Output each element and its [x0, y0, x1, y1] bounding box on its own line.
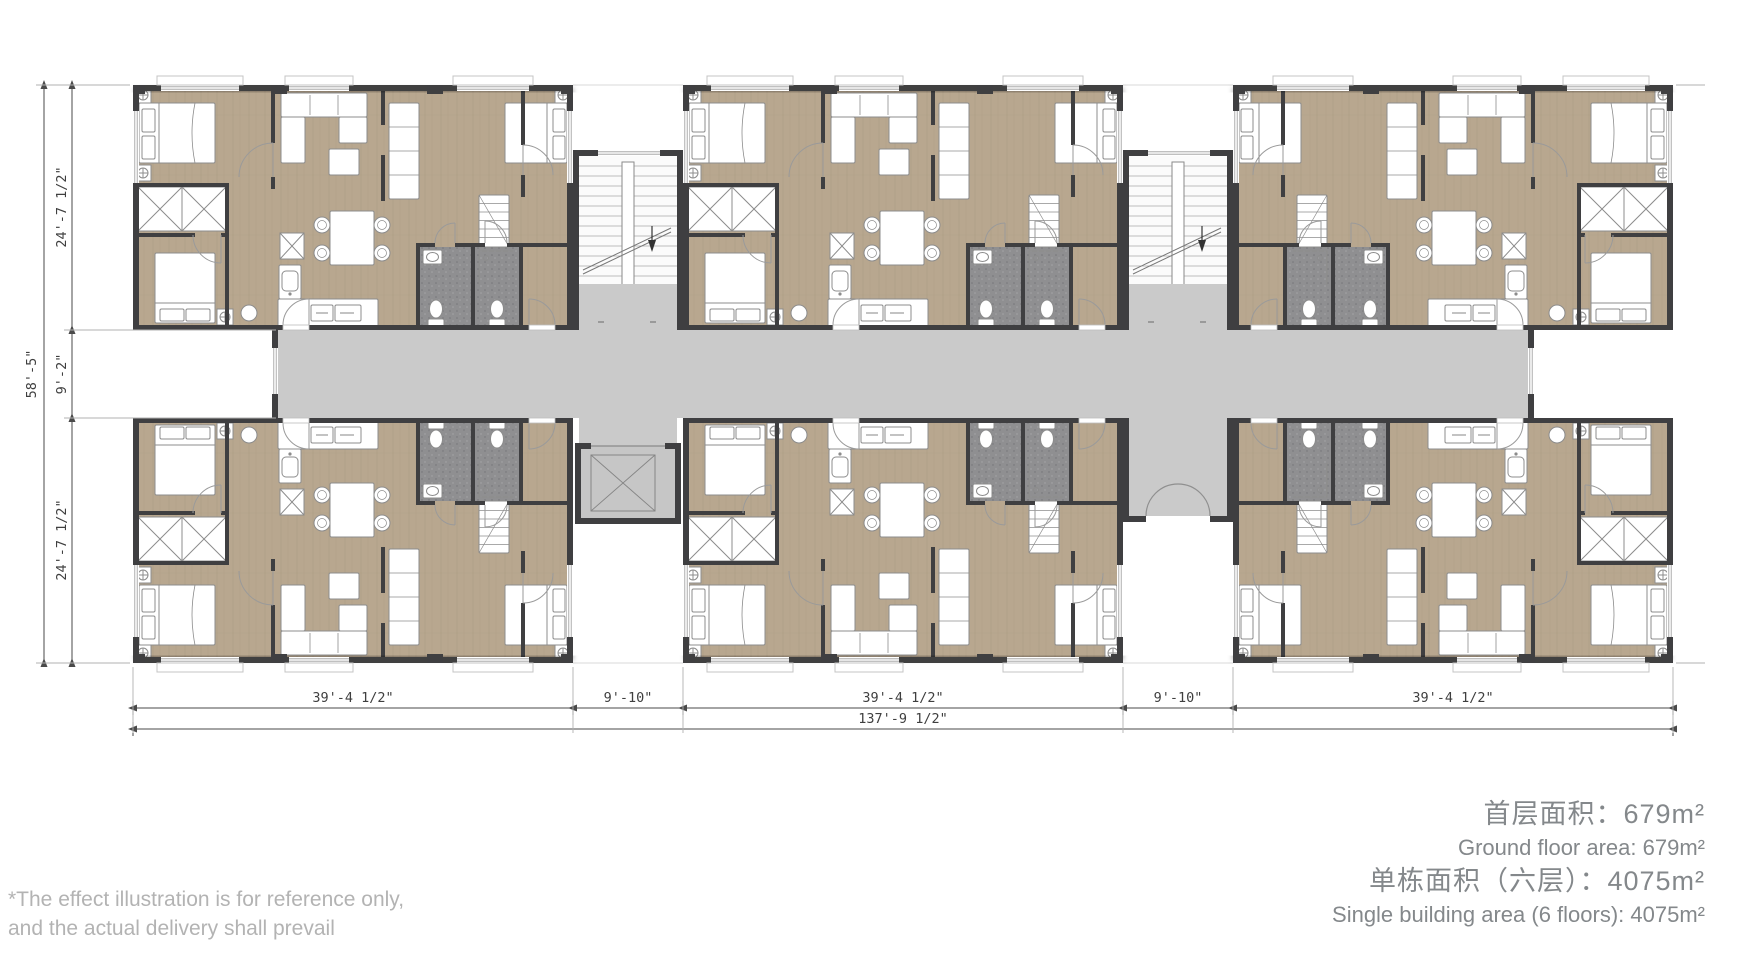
disclaimer-line-2: and the actual delivery shall prevail	[8, 914, 404, 943]
disclaimer-line-1: *The effect illustration is for referenc…	[8, 885, 404, 914]
single-building-area-zh: 单栋面积（六层）：4075m²	[1065, 863, 1705, 899]
dim-bottom-seg-3: 39'-4 1/2"	[862, 690, 943, 706]
dim-bottom-seg-5: 39'-4 1/2"	[1412, 690, 1493, 706]
dim-left-seg-mid: 9'-2"	[54, 354, 70, 395]
disclaimer-note: *The effect illustration is for referenc…	[8, 885, 404, 943]
dim-bottom-seg-2: 9'-10"	[604, 690, 653, 706]
single-building-area-en: Single building area (6 floors): 4075m²	[1065, 899, 1705, 930]
dim-bottom-overall: 137'-9 1/2"	[858, 711, 947, 727]
dim-left-seg-bot: 24'-7 1/2"	[54, 499, 70, 580]
dim-left-seg-top: 24'-7 1/2"	[54, 166, 70, 247]
ground-floor-area-zh: 首层面积：679m²	[1065, 796, 1705, 832]
area-info-block: 首层面积：679m² Ground floor area: 679m² 单栋面积…	[1065, 796, 1705, 930]
dim-bottom-seg-4: 9'-10"	[1154, 690, 1203, 706]
floor-plan-page: 58'-5" 24'-7 1/2" 9'-2" 24'-7 1/2" 39'-4…	[0, 0, 1737, 953]
ground-floor-area-en: Ground floor area: 679m²	[1065, 832, 1705, 863]
dim-left-overall: 58'-5"	[24, 350, 40, 399]
dim-bottom-seg-1: 39'-4 1/2"	[312, 690, 393, 706]
